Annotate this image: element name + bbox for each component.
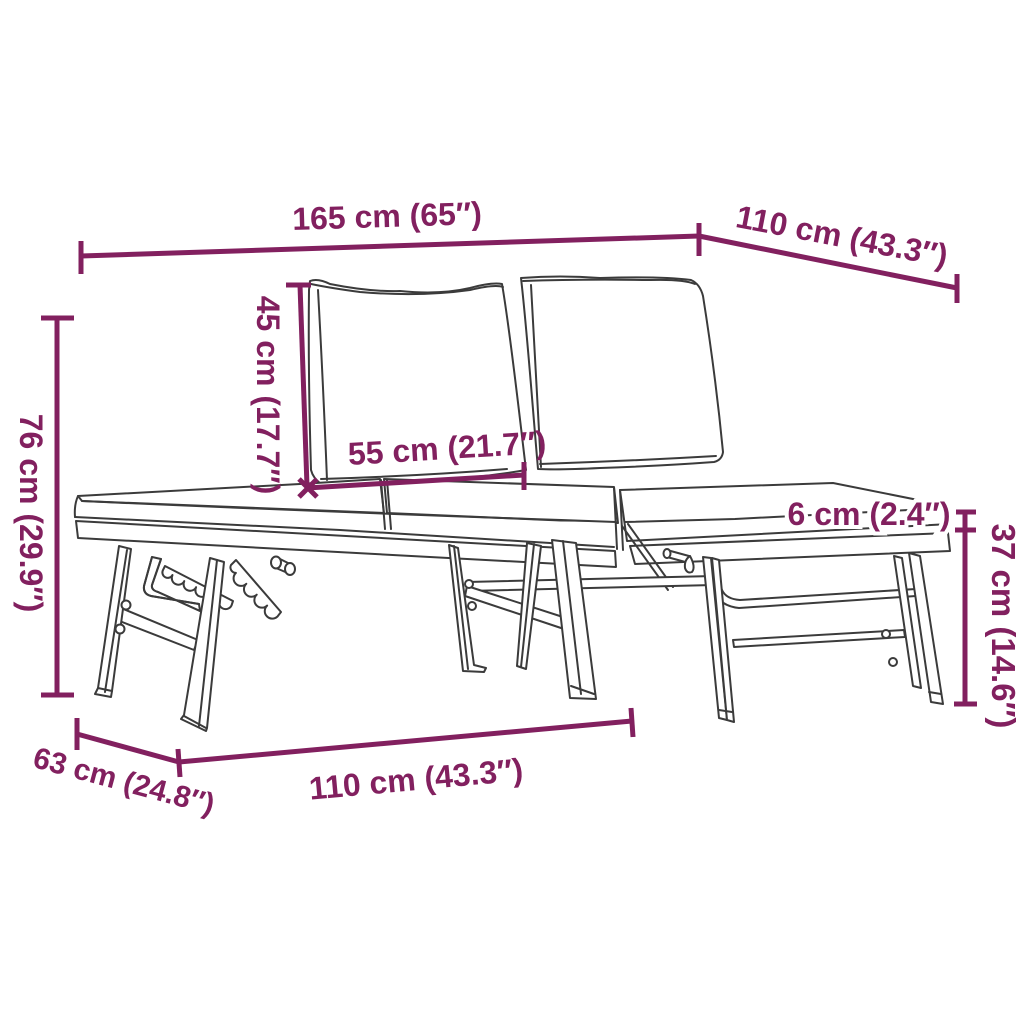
svg-text:45 cm (17.7″): 45 cm (17.7″) [250, 296, 286, 495]
svg-text:6 cm (2.4″): 6 cm (2.4″) [788, 496, 951, 532]
svg-text:37 cm (14.6″): 37 cm (14.6″) [985, 524, 1022, 729]
svg-text:165 cm (65″): 165 cm (65″) [292, 195, 483, 237]
svg-text:76 cm (29.9″): 76 cm (29.9″) [13, 414, 49, 613]
